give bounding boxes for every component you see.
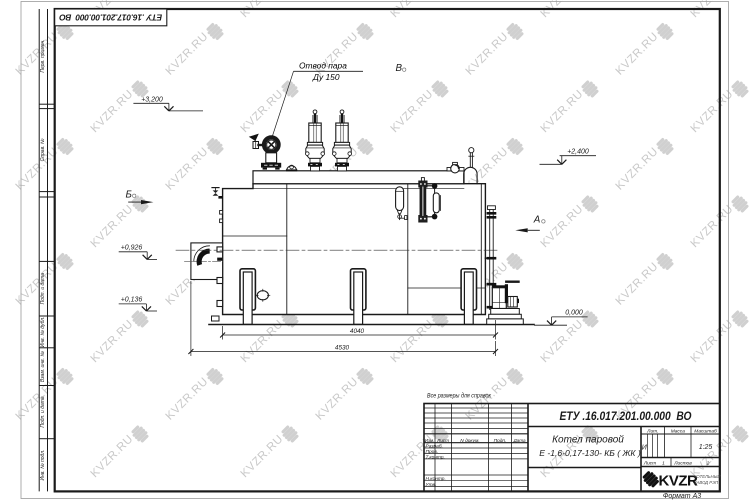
svg-text:Е -1,6-0,17-130- КБ ( ЖК ): Е -1,6-0,17-130- КБ ( ЖК ): [539, 448, 641, 458]
svg-text:Подп. и дата: Подп. и дата: [40, 273, 46, 305]
svg-text:0,000: 0,000: [565, 309, 583, 316]
svg-text:Лист: Лист: [643, 460, 656, 466]
svg-text:KVZR: KVZR: [659, 473, 699, 490]
svg-text:4530: 4530: [335, 344, 350, 351]
svg-text:Ду 150: Ду 150: [312, 72, 340, 82]
svg-text:А: А: [533, 215, 541, 226]
svg-text:N докум.: N докум.: [460, 438, 479, 444]
svg-text:Разраб.: Разраб.: [426, 444, 443, 450]
svg-text:Котел паровой: Котел паровой: [552, 435, 624, 446]
svg-text:Перв. примен.: Перв. примен.: [40, 39, 46, 72]
svg-text:Подп. и дата: Подп. и дата: [40, 396, 46, 428]
svg-text:+0,136: +0,136: [121, 297, 143, 304]
svg-text:Взам. инв. №: Взам. инв. №: [40, 351, 46, 383]
svg-text:Справ. №: Справ. №: [40, 138, 46, 161]
svg-text:Утв.: Утв.: [426, 482, 437, 488]
svg-text:Лист: Лист: [436, 438, 449, 443]
svg-text:Все размеры для справок: Все размеры для справок: [427, 392, 492, 400]
svg-text:Лит.: Лит.: [646, 429, 658, 435]
svg-text:Пров.: Пров.: [426, 449, 439, 455]
svg-text:Листов: Листов: [673, 460, 692, 466]
svg-text:ЕТУ .16.017.201.00.000 ВО: ЕТУ .16.017.201.00.000 ВО: [59, 13, 162, 23]
svg-text:Масса: Масса: [671, 429, 686, 435]
svg-text:Б: Б: [126, 189, 133, 200]
svg-text:КОТЕЛЬНЫЙ: КОТЕЛЬНЫЙ: [694, 474, 720, 479]
svg-text:+0,926: +0,926: [121, 244, 143, 251]
svg-text:+2,400: +2,400: [567, 148, 589, 155]
svg-text:Инв. № дубл.: Инв. № дубл.: [40, 317, 46, 348]
svg-text:2: 2: [706, 460, 710, 466]
svg-text:4040: 4040: [350, 328, 365, 335]
svg-text:1: 1: [662, 460, 665, 466]
svg-text:Изм.: Изм.: [425, 438, 435, 443]
svg-text:Инв. № подл.: Инв. № подл.: [40, 449, 46, 480]
svg-text:Отвод пара: Отвод пара: [299, 61, 347, 71]
svg-text:Формат А3: Формат А3: [663, 493, 701, 500]
svg-text:ЕТУ .16.017.201.00.000 ВО: ЕТУ .16.017.201.00.000 ВО: [560, 409, 692, 423]
svg-text:1:25: 1:25: [699, 444, 713, 451]
svg-text:Дата: Дата: [512, 438, 526, 443]
svg-text:ЗАВОД РЭП: ЗАВОД РЭП: [694, 480, 719, 485]
svg-text:Т.контр.: Т.контр.: [426, 455, 445, 461]
svg-text:Подп.: Подп.: [494, 438, 507, 444]
svg-text:Масштаб: Масштаб: [694, 429, 717, 435]
svg-text:+3,200: +3,200: [141, 96, 163, 103]
svg-text:В: В: [396, 63, 403, 74]
svg-text:Н.контр.: Н.контр.: [426, 476, 446, 482]
